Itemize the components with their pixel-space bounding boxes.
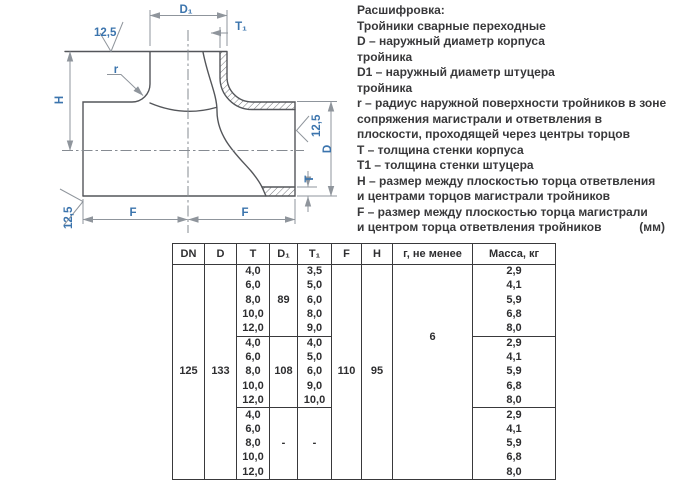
cell-mass: 6,8 [473, 379, 556, 393]
col-t: T [237, 244, 270, 265]
legend-line-last: и центром торца ответвления тройников (м… [357, 220, 665, 236]
cell-t1: 9,0 [298, 379, 332, 393]
label-h: H [54, 96, 66, 104]
wall-section-top [220, 52, 295, 110]
cell-t: 4,0 [237, 336, 270, 350]
cell-t1: 4,0 [298, 336, 332, 350]
legend-line: D1 – наружный диаметр штуцера [357, 65, 665, 81]
cell-t: 8,0 [237, 293, 270, 307]
legend-line: D – наружный диаметр корпуса [357, 34, 665, 50]
label-roughness-right: 12,5 [311, 114, 323, 137]
col-d: D [205, 244, 237, 265]
wall-section-bottom [262, 187, 295, 196]
cell-mass: 5,9 [473, 365, 556, 379]
label-roughness-bottom-left: 12,5 [63, 206, 75, 229]
page: D₁ T₁ r H D T F F 12,5 12,5 12,5 Расшифр… [0, 0, 700, 486]
cell-t1: 6,0 [298, 365, 332, 379]
units-note: (мм) [639, 220, 665, 236]
legend: Расшифровка: Тройники сварные переходные… [357, 3, 665, 236]
cell-t: 12,0 [237, 393, 270, 407]
cell-t: 6,0 [237, 422, 270, 436]
cell-t1: 10,0 [298, 393, 332, 407]
transition-s-curve [203, 52, 262, 187]
legend-line: r – радиус наружной поверхности тройнико… [357, 96, 665, 112]
cell-t1: 6,0 [298, 293, 332, 307]
label-r: r [114, 64, 119, 76]
cell-t: 6,0 [237, 350, 270, 364]
cell-mass: 4,1 [473, 279, 556, 293]
legend-line-text: и центром торца ответвления тройников [357, 220, 601, 236]
cell-t1: - [298, 408, 332, 480]
table-row: 125 133 4,0 89 3,5 110 95 6 2,9 [173, 265, 556, 279]
legend-title: Расшифровка: [357, 3, 665, 19]
cell-t1: 5,0 [298, 279, 332, 293]
cell-mass: 4,1 [473, 422, 556, 436]
legend-line: T – толщина стенки корпуса [357, 143, 665, 159]
cell-t1: 8,0 [298, 307, 332, 321]
legend-line: и центрами торцов магистрали тройников [357, 189, 665, 205]
cell-mass: 8,0 [473, 322, 556, 336]
cell-t: 10,0 [237, 379, 270, 393]
cell-r-min: 6 [393, 265, 473, 480]
cell-mass: 6,8 [473, 307, 556, 321]
legend-line: T1 – толщина стенки штуцера [357, 158, 665, 174]
col-dn: DN [173, 244, 205, 265]
cell-t: 12,0 [237, 322, 270, 336]
crotch-arc [150, 103, 216, 111]
dimensions-table: DN D T D₁ T₁ F H г, не менее Масса, кг 1… [172, 243, 556, 480]
label-t: T [304, 175, 316, 182]
legend-line: тройника [357, 50, 665, 66]
cell-t: 10,0 [237, 307, 270, 321]
cell-t1: 5,0 [298, 350, 332, 364]
col-f: F [332, 244, 362, 265]
cell-t: 8,0 [237, 365, 270, 379]
tee-drawing: D₁ T₁ r H D T F F 12,5 12,5 12,5 [0, 0, 356, 242]
cell-t: 12,0 [237, 465, 270, 479]
col-r-min: г, не менее [393, 244, 473, 265]
cell-mass: 6,8 [473, 451, 556, 465]
legend-line: плоскости, проходящей через центры торцо… [357, 127, 665, 143]
label-d1: D₁ [179, 4, 192, 16]
cell-t: 10,0 [237, 451, 270, 465]
cell-mass: 5,9 [473, 436, 556, 450]
cell-dn: 125 [173, 265, 205, 480]
col-t1: T₁ [298, 244, 332, 265]
cell-mass: 2,9 [473, 336, 556, 350]
cell-d1: 108 [270, 336, 298, 408]
cell-t: 4,0 [237, 265, 270, 279]
cell-d1: - [270, 408, 298, 480]
label-t1: T₁ [235, 21, 247, 33]
roughness-mark-right [297, 116, 310, 142]
dimensions-table-wrap: DN D T D₁ T₁ F H г, не менее Масса, кг 1… [172, 243, 556, 480]
col-d1: D₁ [270, 244, 298, 265]
leader-r [107, 75, 143, 96]
cell-t: 8,0 [237, 436, 270, 450]
cell-f: 110 [332, 265, 362, 480]
label-f-left: F [129, 207, 136, 219]
header-row: DN D T D₁ T₁ F H г, не менее Масса, кг [173, 244, 556, 265]
legend-line: H – размер между плоскостью торца ответв… [357, 174, 665, 190]
legend-line: Тройники сварные переходные [357, 19, 665, 35]
legend-line: F – размер между плоскостью торца магист… [357, 205, 665, 221]
cell-mass: 8,0 [473, 393, 556, 407]
legend-line: сопряжения магистрали и ответвления в [357, 112, 665, 128]
cell-t1: 3,5 [298, 265, 332, 279]
cell-mass: 5,9 [473, 293, 556, 307]
cell-mass: 8,0 [473, 465, 556, 479]
cell-d1: 89 [270, 265, 298, 337]
cell-d: 133 [205, 265, 237, 480]
label-f-right: F [241, 207, 248, 219]
label-d: D [322, 145, 334, 153]
cell-t: 6,0 [237, 279, 270, 293]
col-h: H [362, 244, 393, 265]
cell-mass: 2,9 [473, 265, 556, 279]
cell-mass: 2,9 [473, 408, 556, 422]
legend-line: тройника [357, 81, 665, 97]
cell-t: 4,0 [237, 408, 270, 422]
cell-h: 95 [362, 265, 393, 480]
label-roughness-top: 12,5 [94, 27, 117, 39]
cell-t1: 9,0 [298, 322, 332, 336]
cell-mass: 4,1 [473, 350, 556, 364]
col-mass: Масса, кг [473, 244, 556, 265]
